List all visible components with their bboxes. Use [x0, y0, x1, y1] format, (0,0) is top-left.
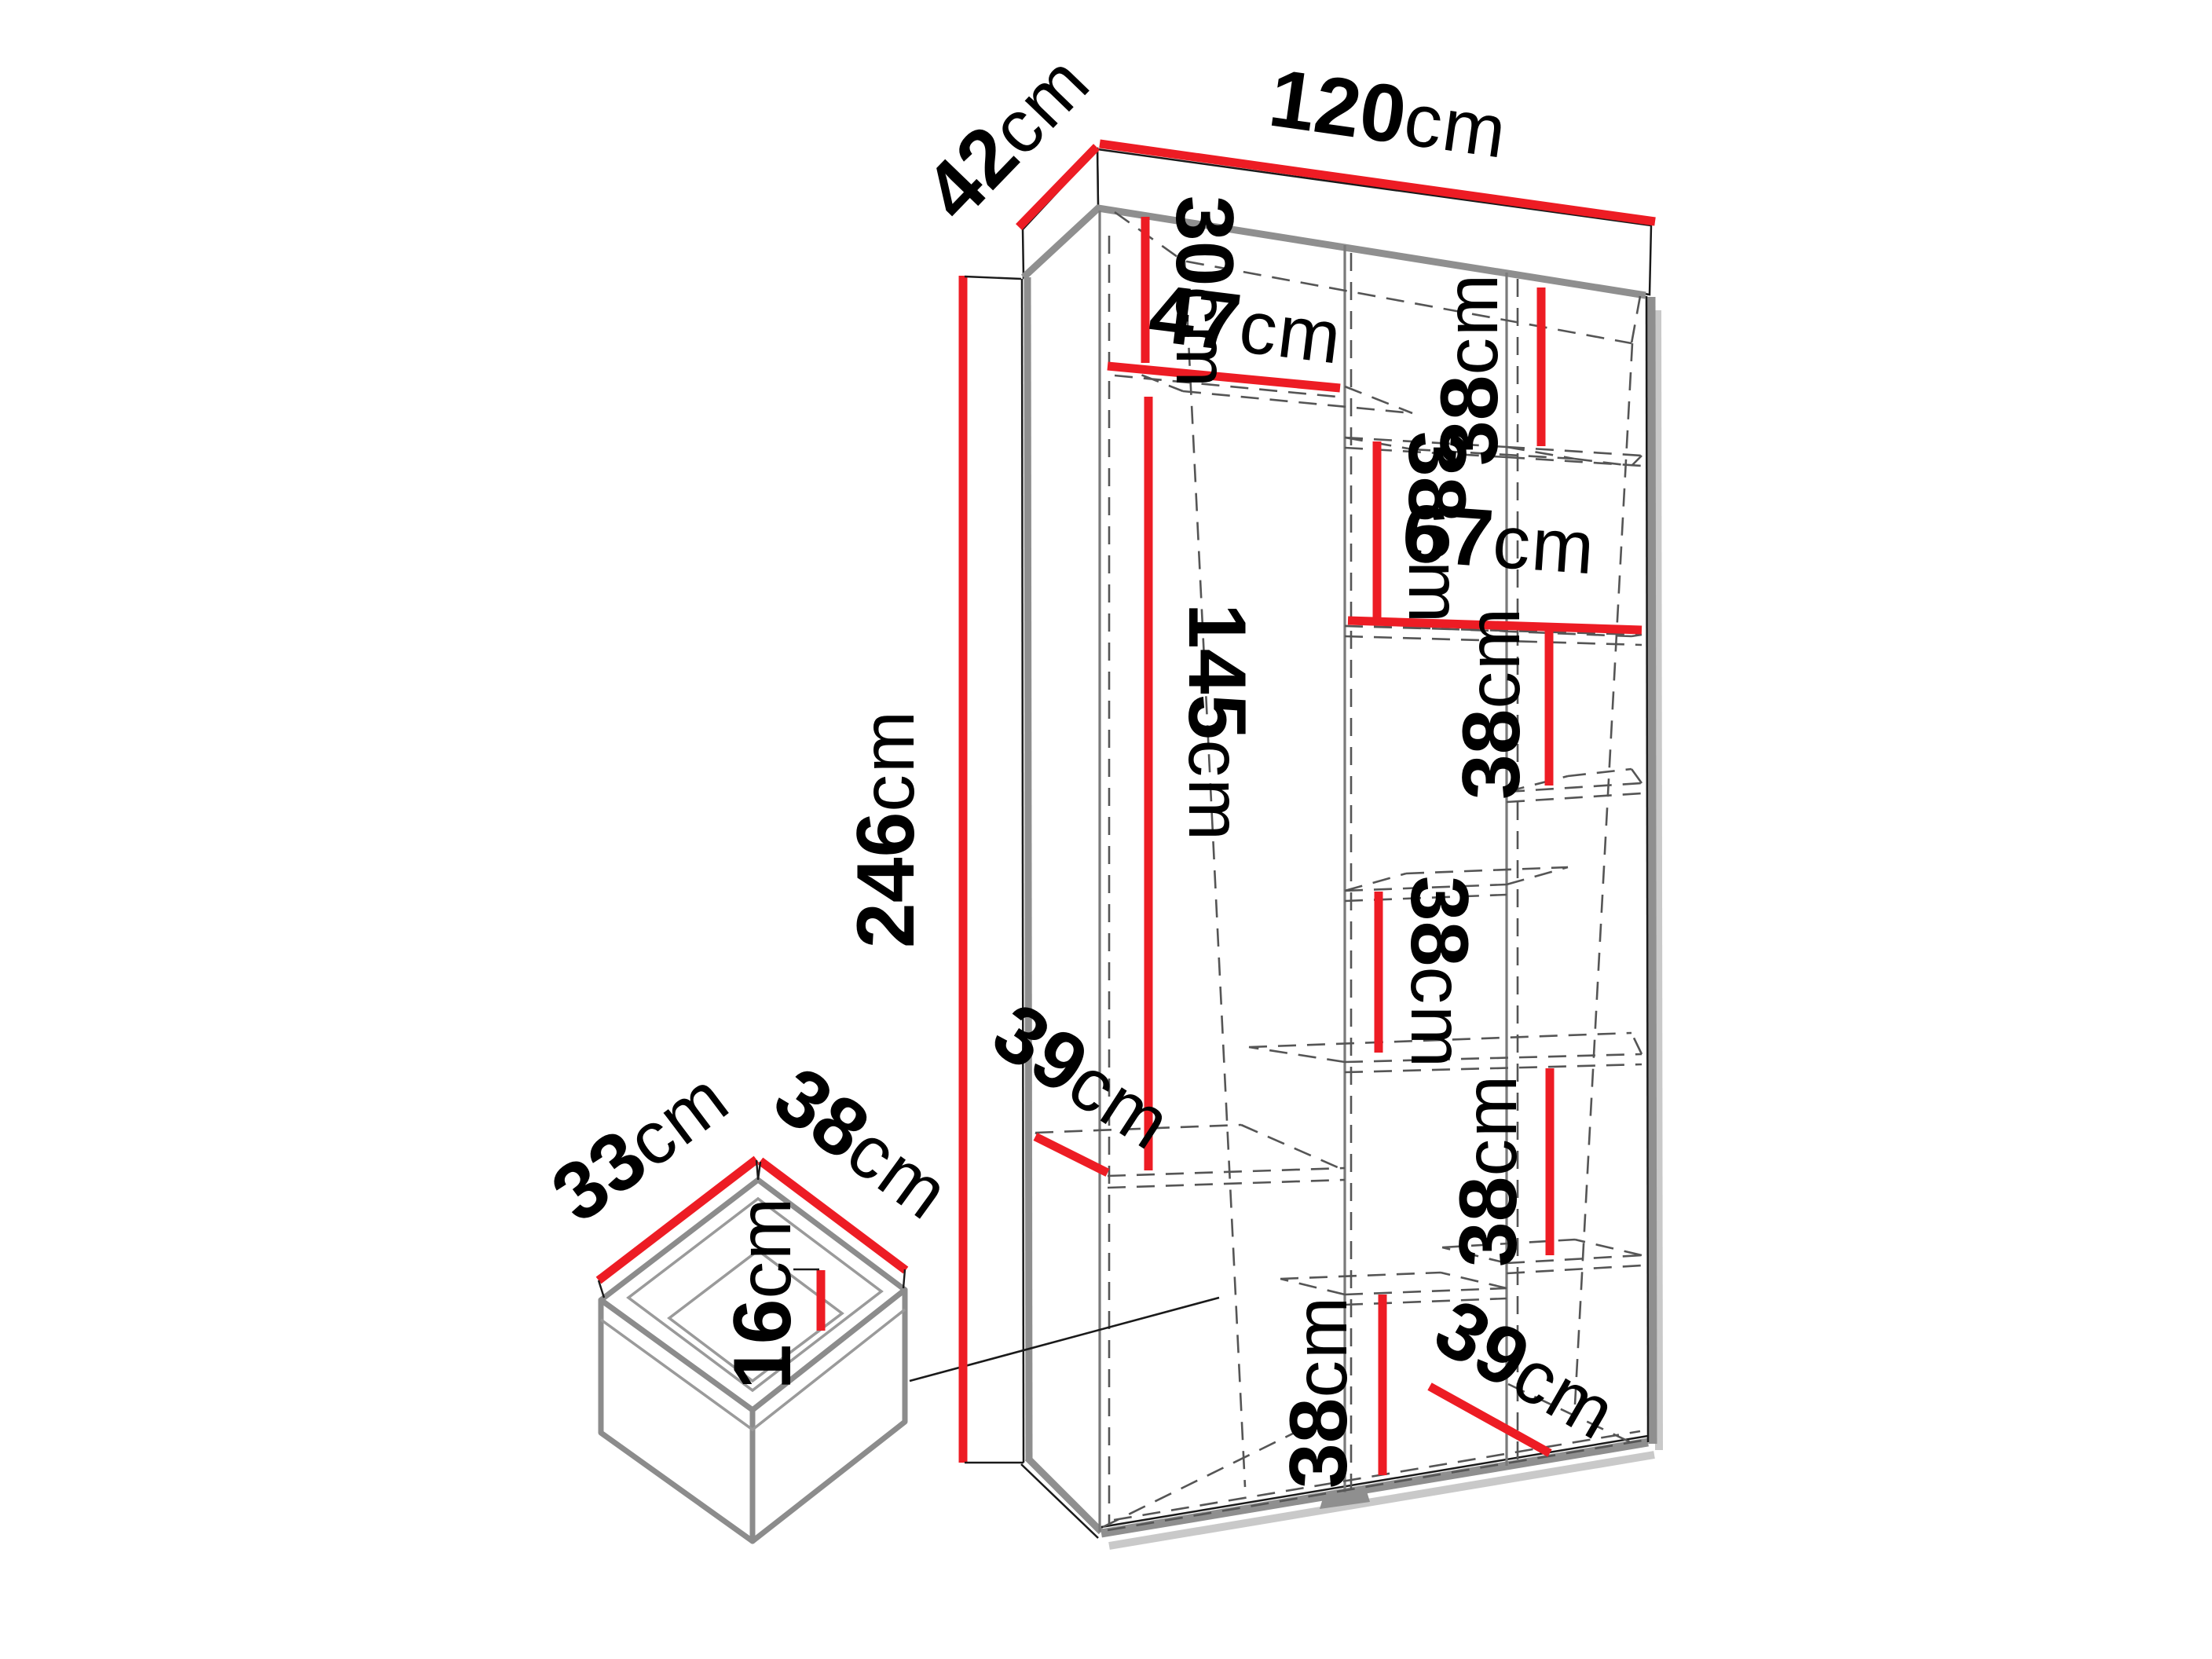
- drawer-callout-line: [910, 1298, 1219, 1381]
- label-bottom-38: 38cm: [1273, 1295, 1364, 1489]
- dim-depthl-39: [1035, 1137, 1108, 1173]
- label-m38-mid: 38cm: [1393, 876, 1485, 1069]
- label-hang-145: 145cm: [1171, 603, 1262, 842]
- label-drawer-16: 16cm: [717, 1196, 808, 1390]
- label-r38-mid: 38cm: [1446, 606, 1537, 800]
- label-width-120: 120cm: [1264, 53, 1513, 176]
- label-r38-low: 38cm: [1443, 1074, 1534, 1267]
- page: 42cm 120cm 30cm 47cm 38cm 38cm 67cm 145c…: [0, 0, 2212, 1659]
- label-height-246: 246cm: [840, 709, 932, 948]
- label-depthr-39: 39cm: [1420, 1282, 1633, 1458]
- label-span-67: 67cm: [1400, 488, 1599, 592]
- wardrobe-dimension-diagram: 42cm 120cm 30cm 47cm 38cm 38cm 67cm 145c…: [0, 0, 2212, 1659]
- label-depthl-39: 39cm: [977, 986, 1189, 1167]
